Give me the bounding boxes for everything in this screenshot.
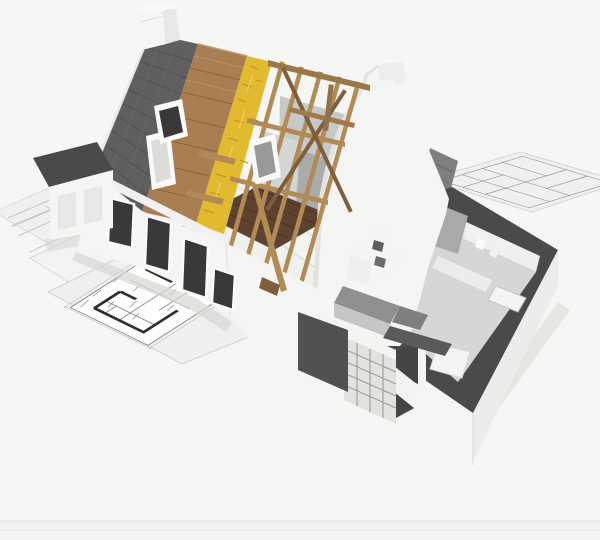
bottom-border xyxy=(0,520,600,540)
window xyxy=(182,238,208,298)
skylight-window xyxy=(154,99,188,144)
screenshot-root xyxy=(0,0,600,540)
architectural-render xyxy=(0,0,600,540)
window xyxy=(212,268,235,310)
window xyxy=(145,216,171,272)
